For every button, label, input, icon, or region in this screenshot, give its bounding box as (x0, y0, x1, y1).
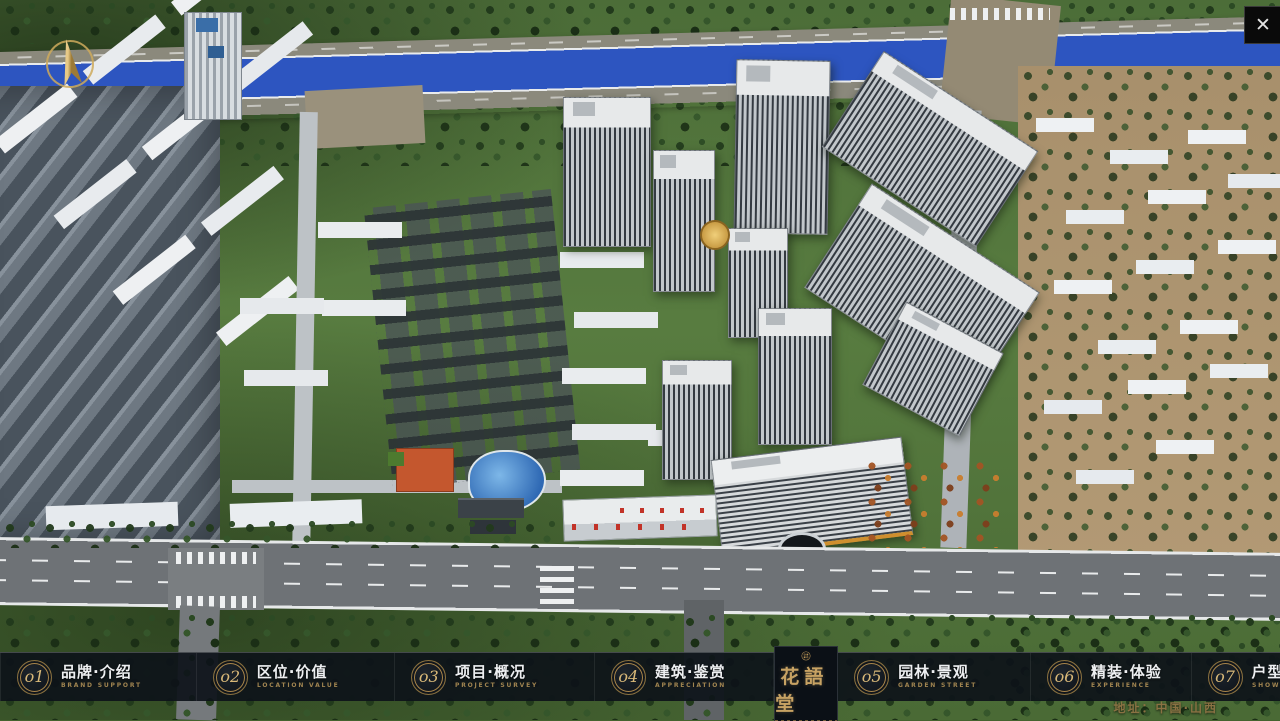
tower (653, 150, 715, 292)
nav-label-en: LOCATION VALUE (257, 682, 339, 689)
nav-label-zh: 户型·分布 (1252, 661, 1280, 682)
nav-label-en: BRAND SUPPORT (61, 682, 142, 689)
seal-icon (793, 651, 819, 661)
blue-glass-roof (208, 46, 224, 58)
nav-label-zh: 园林·景观 (898, 661, 1030, 682)
nav-label-en: PROJECT SURVEY (455, 682, 538, 689)
nav-label-en: GARDEN STREET (898, 682, 977, 689)
bridge-left (305, 85, 426, 149)
chinese-gate-roof (458, 498, 524, 518)
tower (733, 59, 830, 235)
nav-badge-05: o5 (854, 660, 889, 695)
left-estate-buildings (0, 86, 220, 546)
entrance-canopy (562, 494, 717, 541)
bottom-nav-bar: o1 品牌·介绍 BRAND SUPPORT o2 区位·价值 LOCATION… (0, 652, 1280, 701)
nav-label-zh: 区位·价值 (257, 661, 394, 682)
brand-logo-panel[interactable]: 花語堂 (774, 646, 838, 721)
orange-trees (862, 456, 1012, 548)
project-address: 地址：中国·山西 (1113, 699, 1218, 716)
nav-label-zh: 品牌·介绍 (61, 661, 196, 682)
nav-label-en: APPRECIATION (655, 682, 726, 689)
nav-item-decoration[interactable]: o6 精装·体验 EXPERIENCE (1031, 653, 1192, 701)
nav-badge-07: o7 (1208, 660, 1243, 695)
right-estate-trees (1018, 66, 1280, 566)
nav-badge-03: o3 (411, 660, 446, 695)
tower (563, 97, 651, 247)
nav-item-location[interactable]: o2 区位·价值 LOCATION VALUE (197, 653, 395, 701)
crosswalk (540, 560, 574, 604)
nav-badge-01: o1 (17, 660, 52, 695)
site-3d-view[interactable] (0, 0, 1280, 720)
orange-building (396, 448, 454, 492)
nav-item-brand[interactable]: o1 品牌·介绍 BRAND SUPPORT (1, 653, 197, 701)
crosswalk-top (950, 8, 1050, 20)
trees-roadside-north (0, 518, 560, 548)
nav-badge-06: o6 (1047, 660, 1082, 695)
nav-label-en: SHOW ROOM (1252, 682, 1280, 689)
close-button[interactable]: ✕ (1244, 6, 1280, 44)
nav-badge-02: o2 (213, 660, 248, 695)
nav-badge-04: o4 (611, 660, 646, 695)
right-estate-rooftops (1036, 118, 1094, 132)
crosswalk (176, 552, 256, 564)
low-rise-rooftops (318, 222, 402, 238)
nav-item-project[interactable]: o3 项目·概况 PROJECT SURVEY (395, 653, 595, 701)
nav-label-en: EXPERIENCE (1091, 682, 1151, 689)
tower (758, 308, 832, 445)
nav-label-zh: 精装·体验 (1091, 661, 1191, 682)
golden-art-feature (700, 220, 730, 250)
nav-item-garden[interactable]: o5 园林·景观 GARDEN STREET (838, 653, 1031, 701)
flag-row (572, 524, 704, 530)
nav-label-zh: 建筑·鉴赏 (655, 661, 773, 682)
nav-item-architecture[interactable]: o4 建筑·鉴赏 APPRECIATION (595, 653, 774, 701)
blue-glass-roof (196, 18, 218, 32)
nav-item-floorplan[interactable]: o7 户型·分布 SHOW ROOM (1192, 653, 1280, 701)
brand-logo-title: 花語堂 (775, 662, 837, 716)
green-roof-pavilion (388, 452, 404, 466)
nav-label-zh: 项目·概况 (455, 661, 594, 682)
flag-row (620, 508, 710, 513)
compass-north-icon (38, 32, 102, 96)
